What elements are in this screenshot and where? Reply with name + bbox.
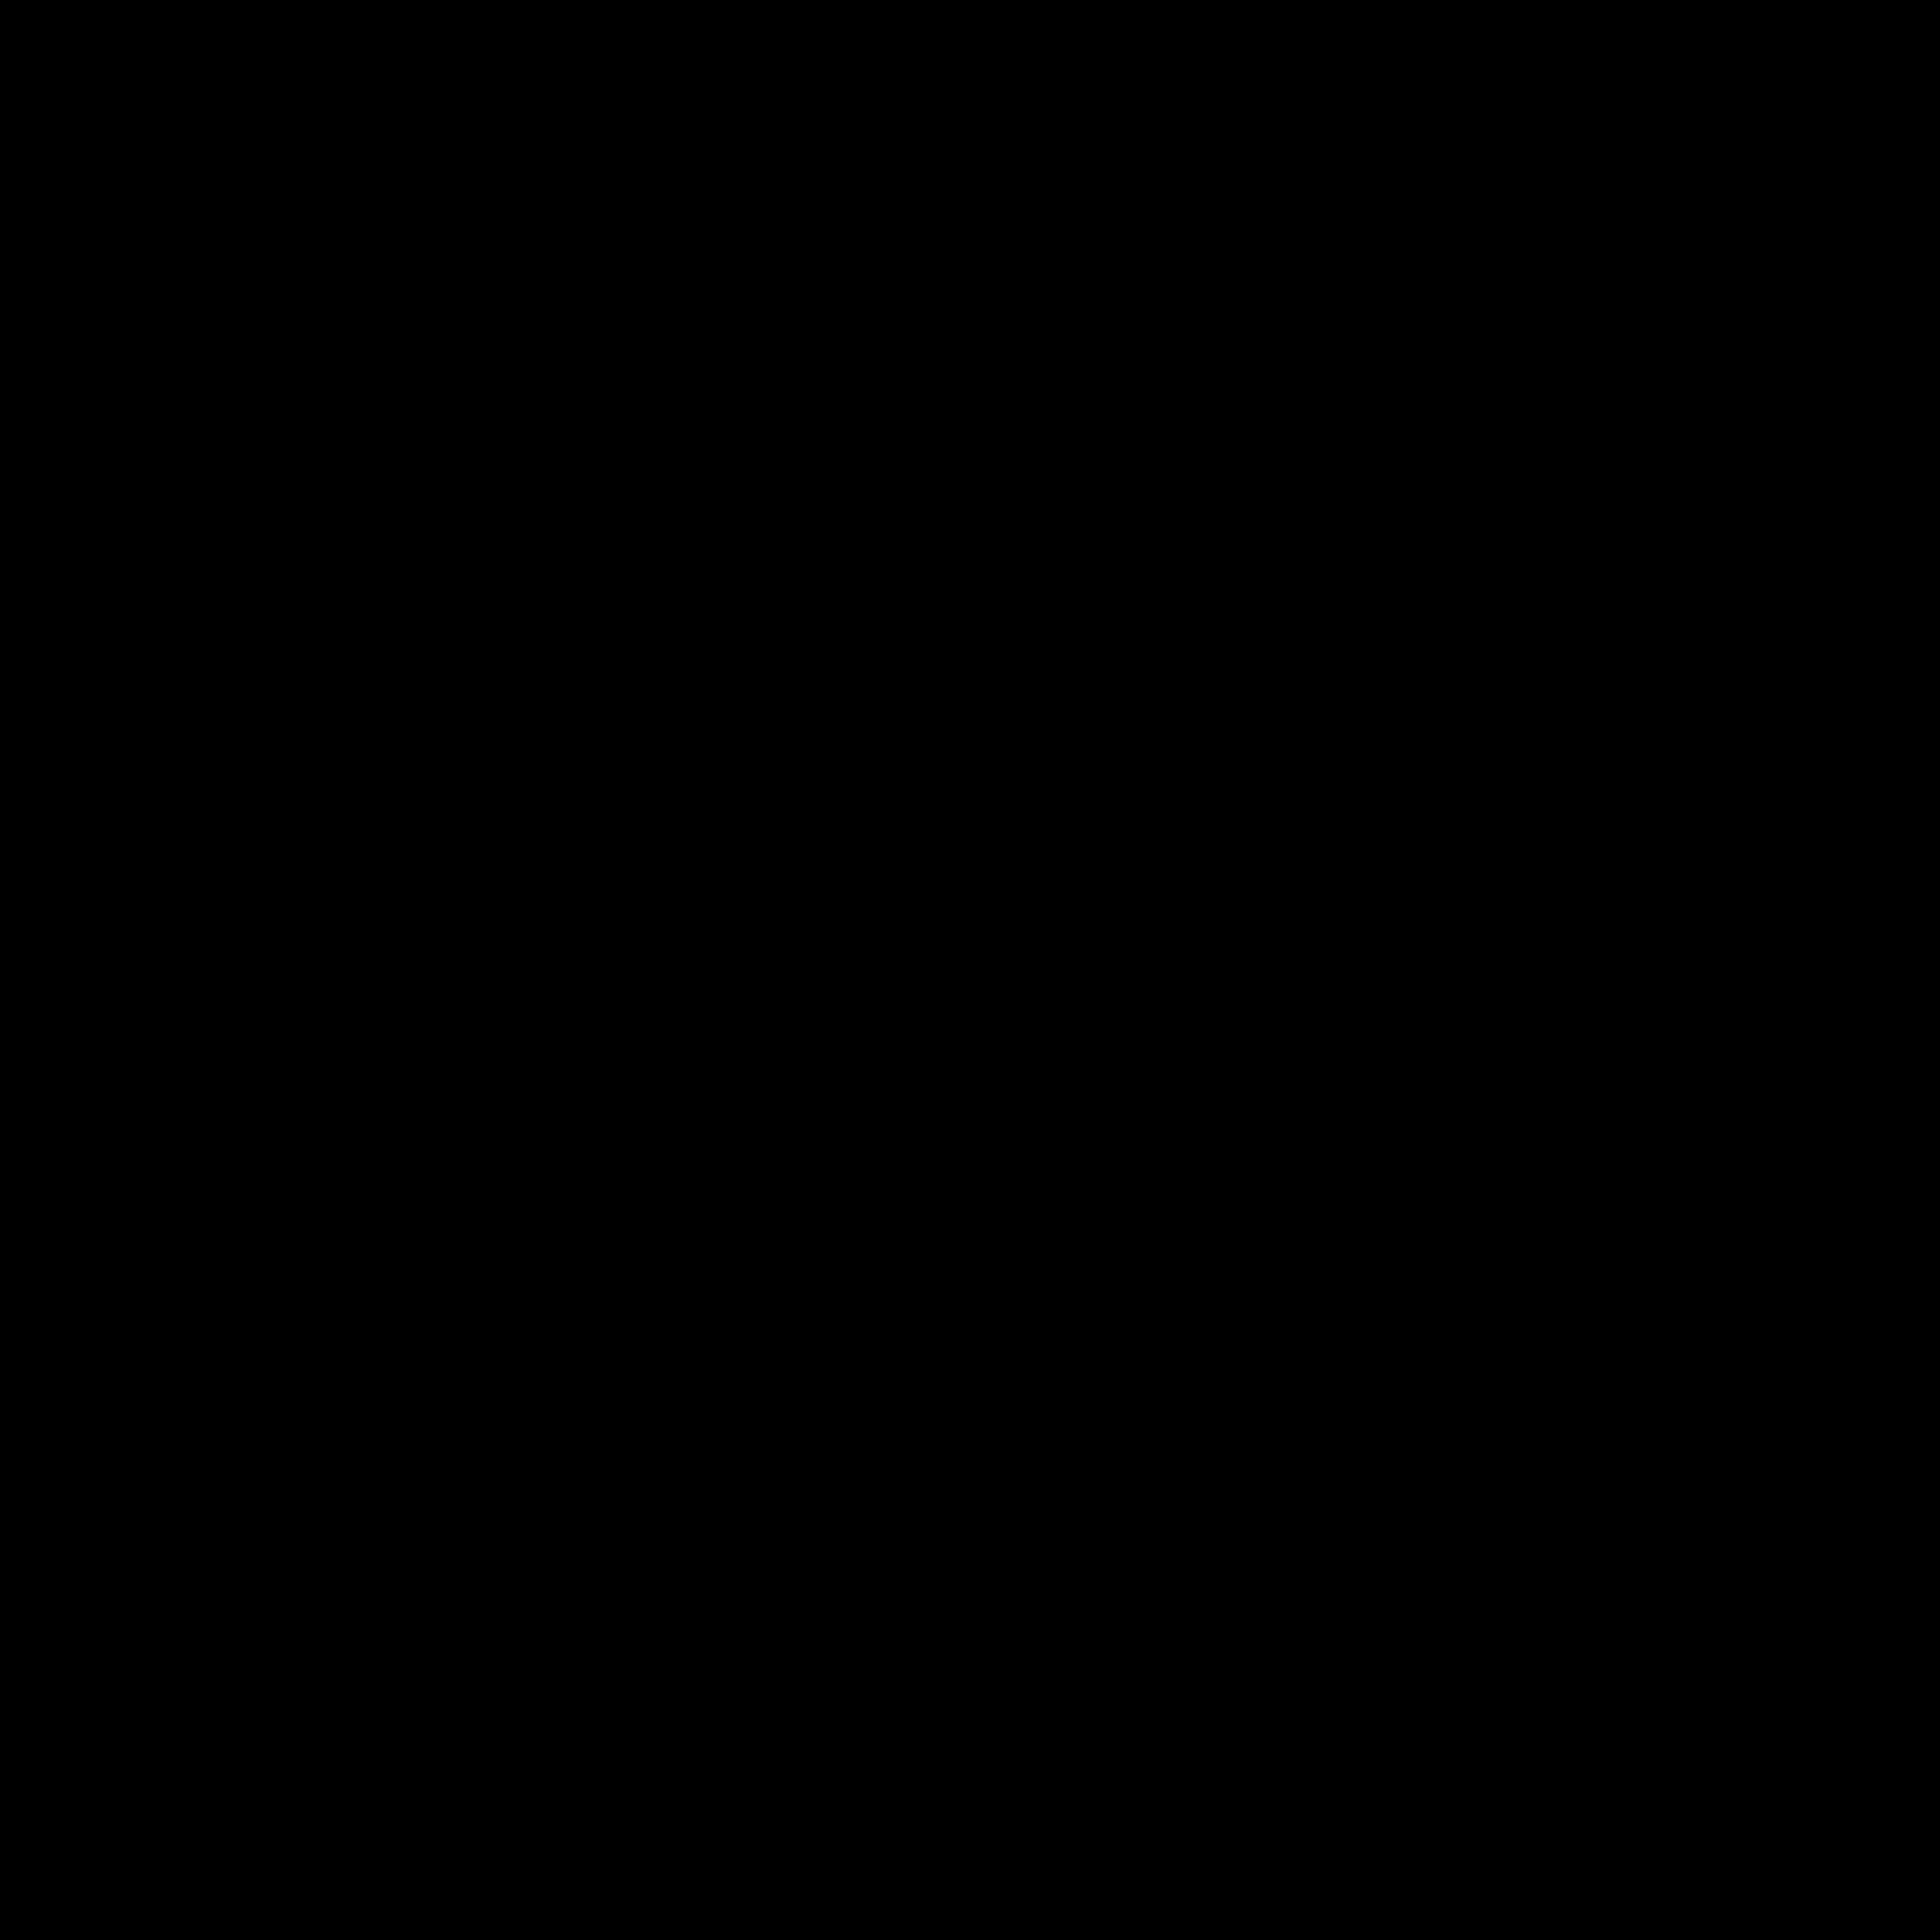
battle-map-stage	[0, 0, 1932, 1932]
norse-temple-battlemap	[0, 0, 1932, 1932]
